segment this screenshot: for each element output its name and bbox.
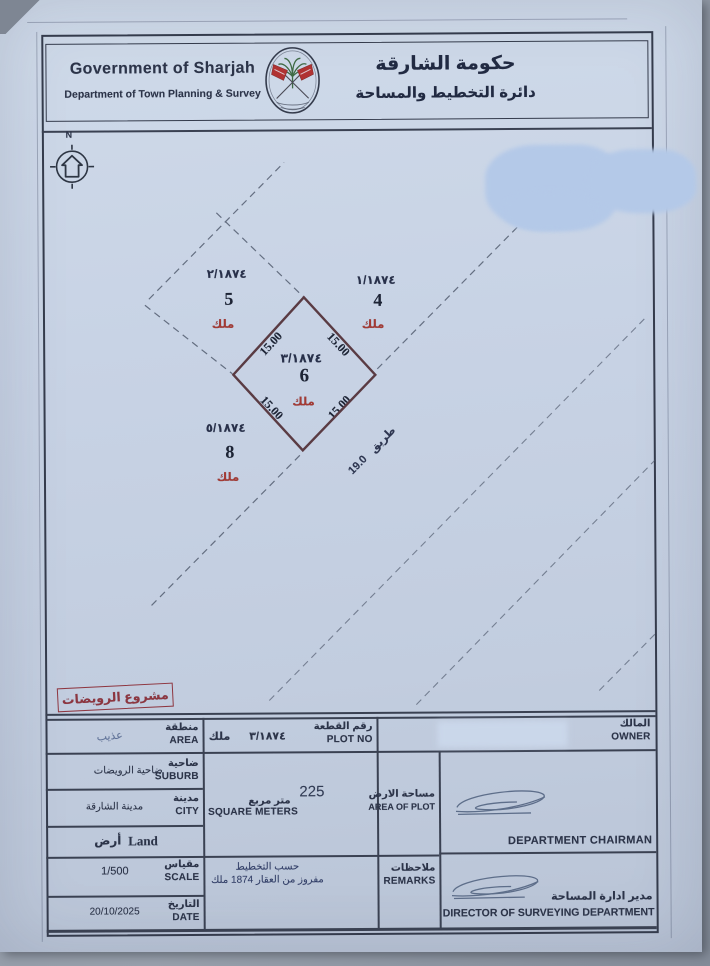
city-label-en: CITY — [175, 806, 199, 817]
whiteout-blob — [503, 191, 595, 232]
sharjah-emblem-icon — [263, 45, 321, 115]
remarks-label-ar: ملاحظات — [391, 863, 436, 874]
compass-icon — [50, 145, 94, 189]
plot-no-tenure: ملك — [200, 730, 240, 743]
scale-label-ar: مقياس — [164, 859, 199, 870]
header-title-ar: حكومة الشارقة — [332, 52, 558, 76]
chairman-signature — [456, 791, 545, 815]
date-label-ar: التاريخ — [168, 899, 200, 910]
whiteout-blob — [586, 149, 696, 214]
area-of-plot-label-en: AREA OF PLOT — [368, 802, 435, 812]
director-signature — [452, 876, 538, 899]
area-of-plot-unit-ar: متر مربع — [232, 795, 307, 806]
photo-corner-shadow — [0, 0, 46, 34]
owner-label-ar: المالك — [620, 718, 651, 729]
header-subtitle-en: Department of Town Planning & Survey — [56, 88, 270, 101]
land-value-en: Land — [128, 833, 158, 849]
scale-value: 1/500 — [82, 865, 147, 877]
scale-label-en: SCALE — [164, 872, 199, 883]
city-label-ar: مدينة — [173, 793, 199, 804]
signatures-area — [439, 750, 658, 929]
area-of-plot-label-ar: مساحة الارض — [369, 789, 435, 800]
suburb-label-en: SUBURB — [155, 771, 199, 782]
remarks-line1: حسب التخطيط — [205, 861, 329, 873]
header-subtitle-ar: دائرة التخطيط والمساحة — [331, 83, 561, 102]
plot-boundary — [233, 297, 376, 451]
scanned-plot-plan-document: Government of Sharjah Department of Town… — [0, 0, 710, 966]
header-title-en: Government of Sharjah — [55, 60, 269, 79]
remarks-label-en: REMARKS — [383, 876, 435, 887]
suburb-label-ar: ضاحية — [168, 758, 199, 769]
date-label-en: DATE — [172, 912, 199, 923]
owner-label-en: OWNER — [611, 731, 650, 742]
plot-no-label-en: PLOT NO — [327, 734, 373, 745]
date-value: 20/10/2025 — [79, 906, 151, 917]
city-value: مدينة الشارقة — [57, 801, 172, 813]
plot-no-label-ar: رقم القطعة — [314, 721, 373, 732]
plot-no-value: ٣/١٨٧٤ — [242, 729, 294, 742]
area-label-ar: منطقة — [165, 722, 198, 733]
land-value-ar: أرض — [94, 833, 121, 847]
owner-cell-whiteout — [437, 721, 567, 748]
area-of-plot-unit-en: SQUARE METERS — [205, 806, 301, 818]
area-value-handwritten: عذيب — [96, 729, 123, 744]
remarks-line2: مفروز من العقار 1874 ملك — [199, 874, 335, 886]
area-label-en: AREA — [169, 735, 198, 746]
paper-edge-line-top — [27, 18, 627, 23]
